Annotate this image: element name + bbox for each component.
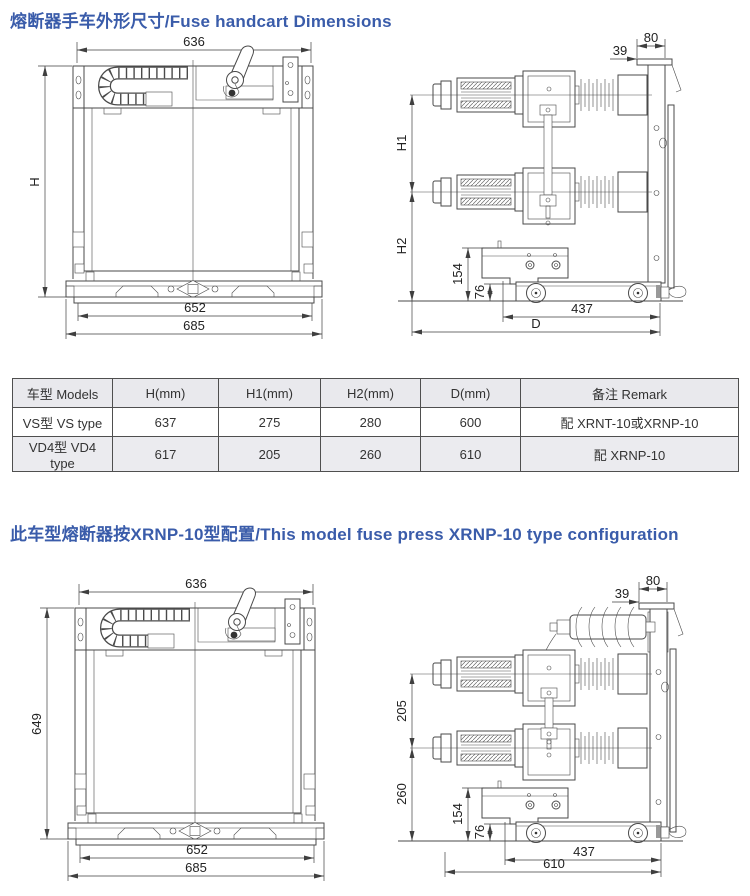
dim-label-39: 39 — [615, 586, 629, 601]
dim-label-205: 205 — [394, 700, 409, 722]
side-view-drawing-1: 80 39 H1 H2 154 76 437 D — [398, 33, 750, 351]
side-view-drawing-2: 80 39 205 260 154 76 437 610 — [398, 576, 750, 896]
dim-label-610: 610 — [543, 856, 565, 871]
dim-label-D: D — [531, 316, 540, 331]
cell-h2: 280 — [321, 408, 421, 437]
table-row: VS型 VS type 637 275 280 600 配 XRNT-10或XR… — [13, 408, 739, 437]
dim-label-685: 685 — [185, 860, 207, 875]
cell-model: VD4型 VD4 type — [13, 437, 113, 472]
dim-label-649: 649 — [29, 713, 44, 735]
cell-remark: 配 XRNT-10或XRNP-10 — [521, 408, 739, 437]
dim-label-437: 437 — [573, 844, 595, 859]
dim-label-39: 39 — [613, 43, 627, 58]
dim-label-154: 154 — [450, 803, 465, 825]
section-title-configuration: 此车型熔断器按XRNP-10型配置/This model fuse press … — [10, 520, 679, 545]
dim-label-685: 685 — [183, 318, 205, 333]
cell-model: VS型 VS type — [13, 408, 113, 437]
front-view-drawing-2: 636 649 652 685 — [22, 578, 352, 888]
dim-label-76: 76 — [472, 285, 487, 299]
cell-d: 600 — [421, 408, 521, 437]
cell-remark: 配 XRNP-10 — [521, 437, 739, 472]
dim-label-636-top: 636 — [185, 576, 207, 591]
dim-label-H2: H2 — [394, 238, 409, 255]
dim-label-80: 80 — [644, 30, 658, 45]
dim-label-652: 652 — [186, 842, 208, 857]
cell-h: 637 — [113, 408, 219, 437]
col-header-h1: H1(mm) — [219, 379, 321, 408]
section-title-dimensions: 熔断器手车外形尺寸/Fuse handcart Dimensions — [10, 7, 392, 32]
cell-h2: 260 — [321, 437, 421, 472]
cell-h: 617 — [113, 437, 219, 472]
dim-label-H: H — [27, 177, 42, 186]
front-view-drawing-1: 636 H 652 685 — [20, 36, 350, 346]
col-header-d: D(mm) — [421, 379, 521, 408]
table-row: VD4型 VD4 type 617 205 260 610 配 XRNP-10 — [13, 437, 739, 472]
cell-h1: 205 — [219, 437, 321, 472]
dim-label-652: 652 — [184, 300, 206, 315]
dim-label-260: 260 — [394, 783, 409, 805]
cell-h1: 275 — [219, 408, 321, 437]
dimensions-table: 车型 Models H(mm) H1(mm) H2(mm) D(mm) 备注 R… — [12, 378, 739, 472]
dim-label-80: 80 — [646, 573, 660, 588]
col-header-h2: H2(mm) — [321, 379, 421, 408]
dim-label-76: 76 — [472, 825, 487, 839]
document-page: 熔断器手车外形尺寸/Fuse handcart Dimensions 此车型熔断… — [0, 0, 750, 896]
dim-label-H1: H1 — [394, 135, 409, 152]
col-header-h: H(mm) — [113, 379, 219, 408]
cell-d: 610 — [421, 437, 521, 472]
dim-label-636-top: 636 — [183, 34, 205, 49]
dim-label-437: 437 — [571, 301, 593, 316]
dim-label-154: 154 — [450, 263, 465, 285]
col-header-remark: 备注 Remark — [521, 379, 739, 408]
col-header-model: 车型 Models — [13, 379, 113, 408]
table-header-row: 车型 Models H(mm) H1(mm) H2(mm) D(mm) 备注 R… — [13, 379, 739, 408]
